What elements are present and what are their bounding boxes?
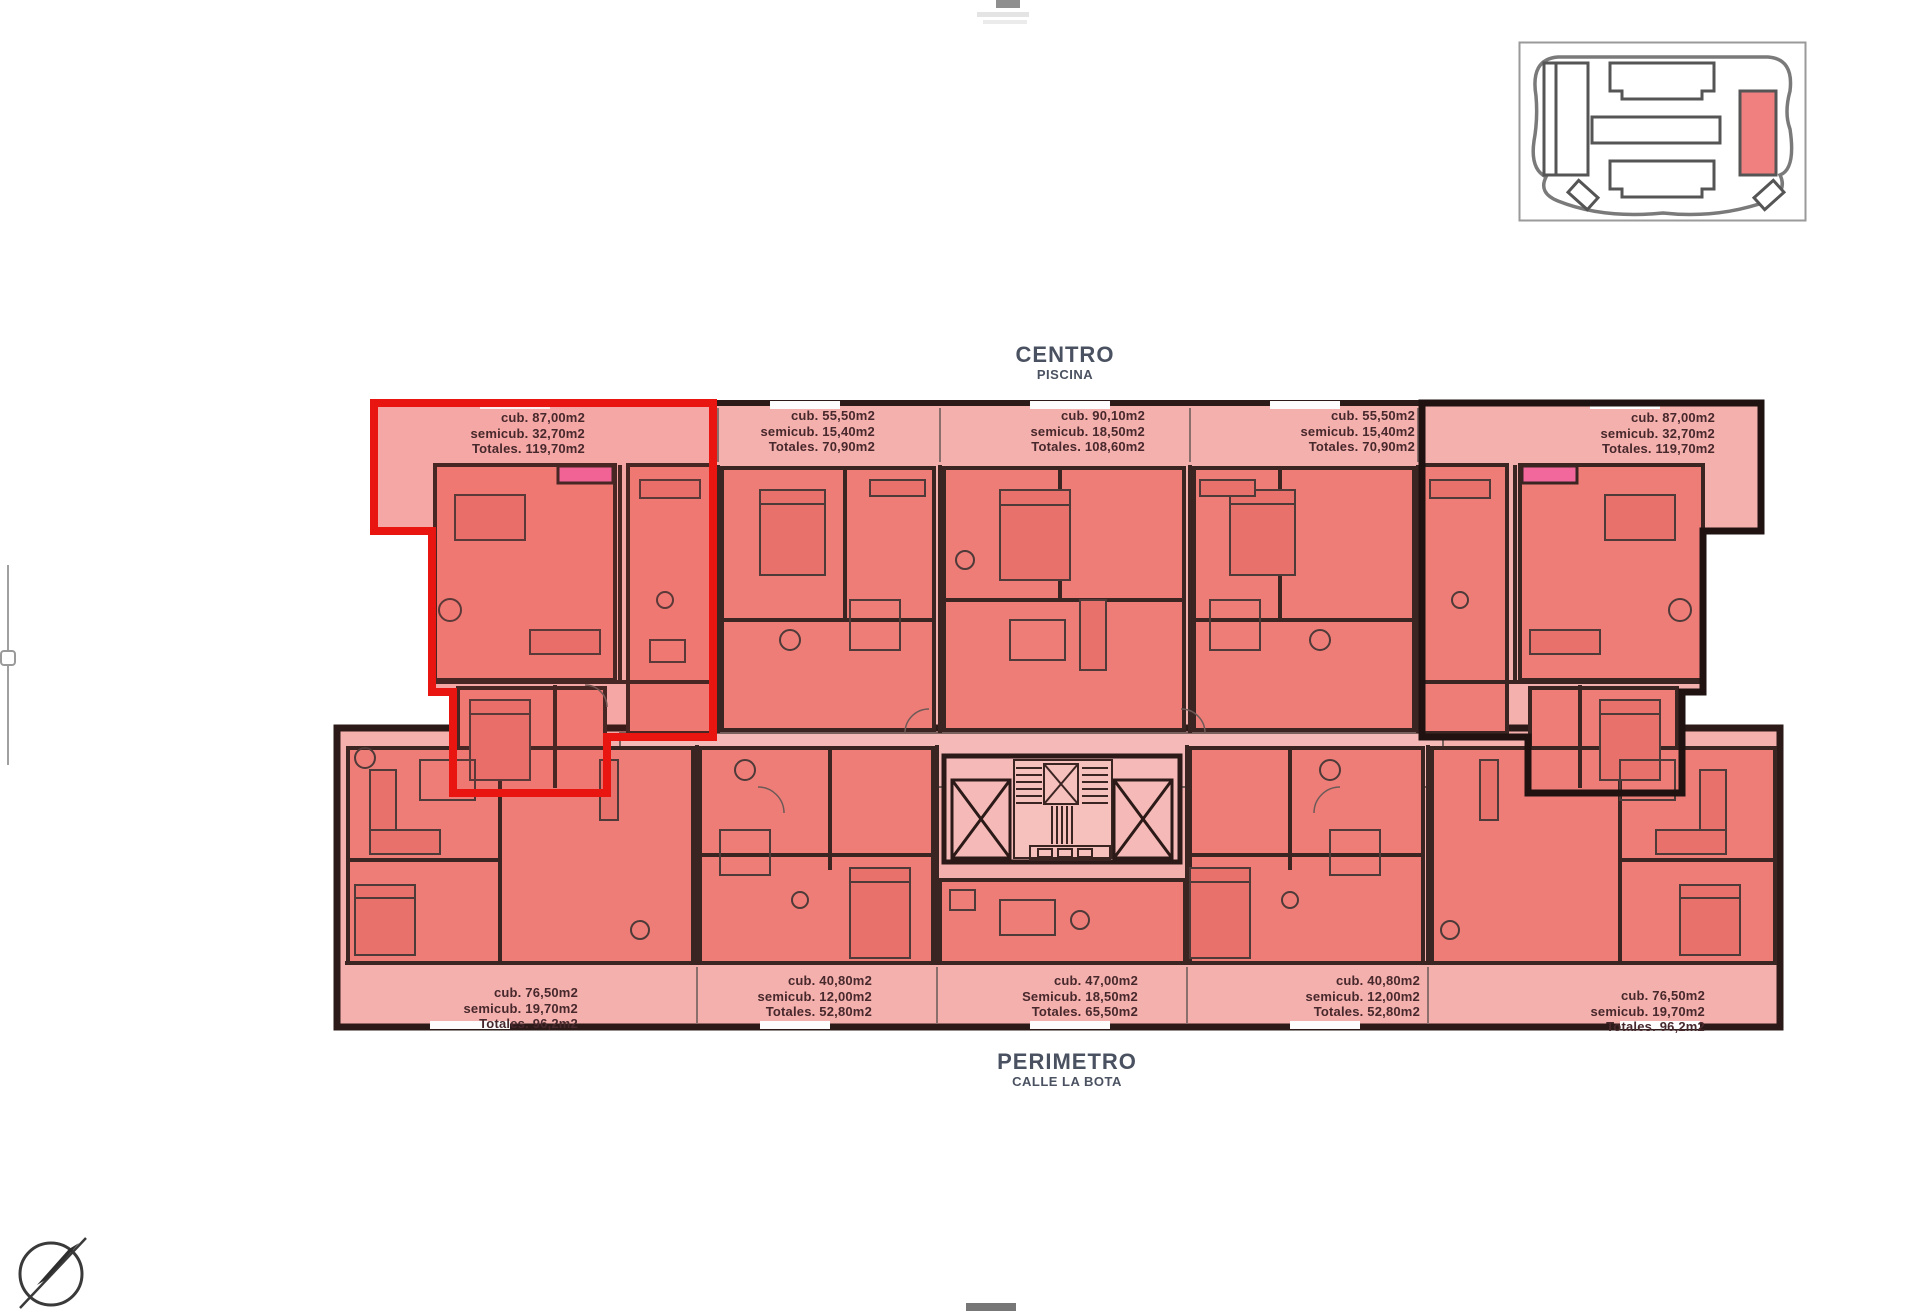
unit-area-label-bottom-5: cub. 76,50m2 semicub. 19,70m2 Totales. 9…	[1515, 988, 1705, 1035]
key-block-left	[1544, 63, 1588, 175]
title-centro: CENTRO PISCINA	[955, 343, 1175, 382]
unit-area-label-bottom-4: cub. 40,80m2 semicub. 12,00m2 Totales. 5…	[1230, 973, 1420, 1020]
title-centro-main: CENTRO	[955, 343, 1175, 367]
canvas-edge-handle[interactable]	[0, 565, 20, 765]
unit-area-label-top-5: cub. 87,00m2 semicub. 32,70m2 Totales. 1…	[1525, 410, 1715, 457]
elevator-core	[944, 756, 1180, 862]
title-centro-sub: PISCINA	[955, 367, 1175, 382]
key-block-bottom	[1610, 161, 1714, 197]
title-perimetro: PERIMETRO CALLE LA BOTA	[957, 1050, 1177, 1089]
unit-area-label-bottom-3: cub. 47,00m2 Semicub. 18,50m2 Totales. 6…	[948, 973, 1138, 1020]
resize-handle-square[interactable]	[1, 651, 15, 665]
title-perimetro-main: PERIMETRO	[957, 1050, 1177, 1074]
key-block-middle	[1592, 117, 1720, 143]
key-block-highlighted	[1740, 91, 1776, 175]
north-arrow-icon	[10, 1234, 92, 1311]
elevator-left-icon	[952, 780, 1010, 858]
key-block-top	[1610, 63, 1714, 99]
title-perimetro-sub: CALLE LA BOTA	[957, 1074, 1177, 1089]
unit-area-label-top-3: cub. 90,10m2 semicub. 18,50m2 Totales. 1…	[955, 408, 1145, 455]
unit-area-label-top-2: cub. 55,50m2 semicub. 15,40m2 Totales. 7…	[685, 408, 875, 455]
elevator-right-icon	[1114, 780, 1172, 858]
unit-area-label-bottom-2: cub. 40,80m2 semicub. 12,00m2 Totales. 5…	[682, 973, 872, 1020]
unit-area-label-top-1: cub. 87,00m2 semicub. 32,70m2 Totales. 1…	[395, 410, 585, 457]
cropped-fragment-top	[977, 0, 1029, 24]
cropped-fragment-bottom	[966, 1303, 1016, 1311]
site-key-plan	[1518, 41, 1808, 223]
unit-area-label-bottom-1: cub. 76,50m2 semicub. 19,70m2 Totales. 9…	[388, 985, 578, 1032]
unit-area-label-top-4: cub. 55,50m2 semicub. 15,40m2 Totales. 7…	[1225, 408, 1415, 455]
